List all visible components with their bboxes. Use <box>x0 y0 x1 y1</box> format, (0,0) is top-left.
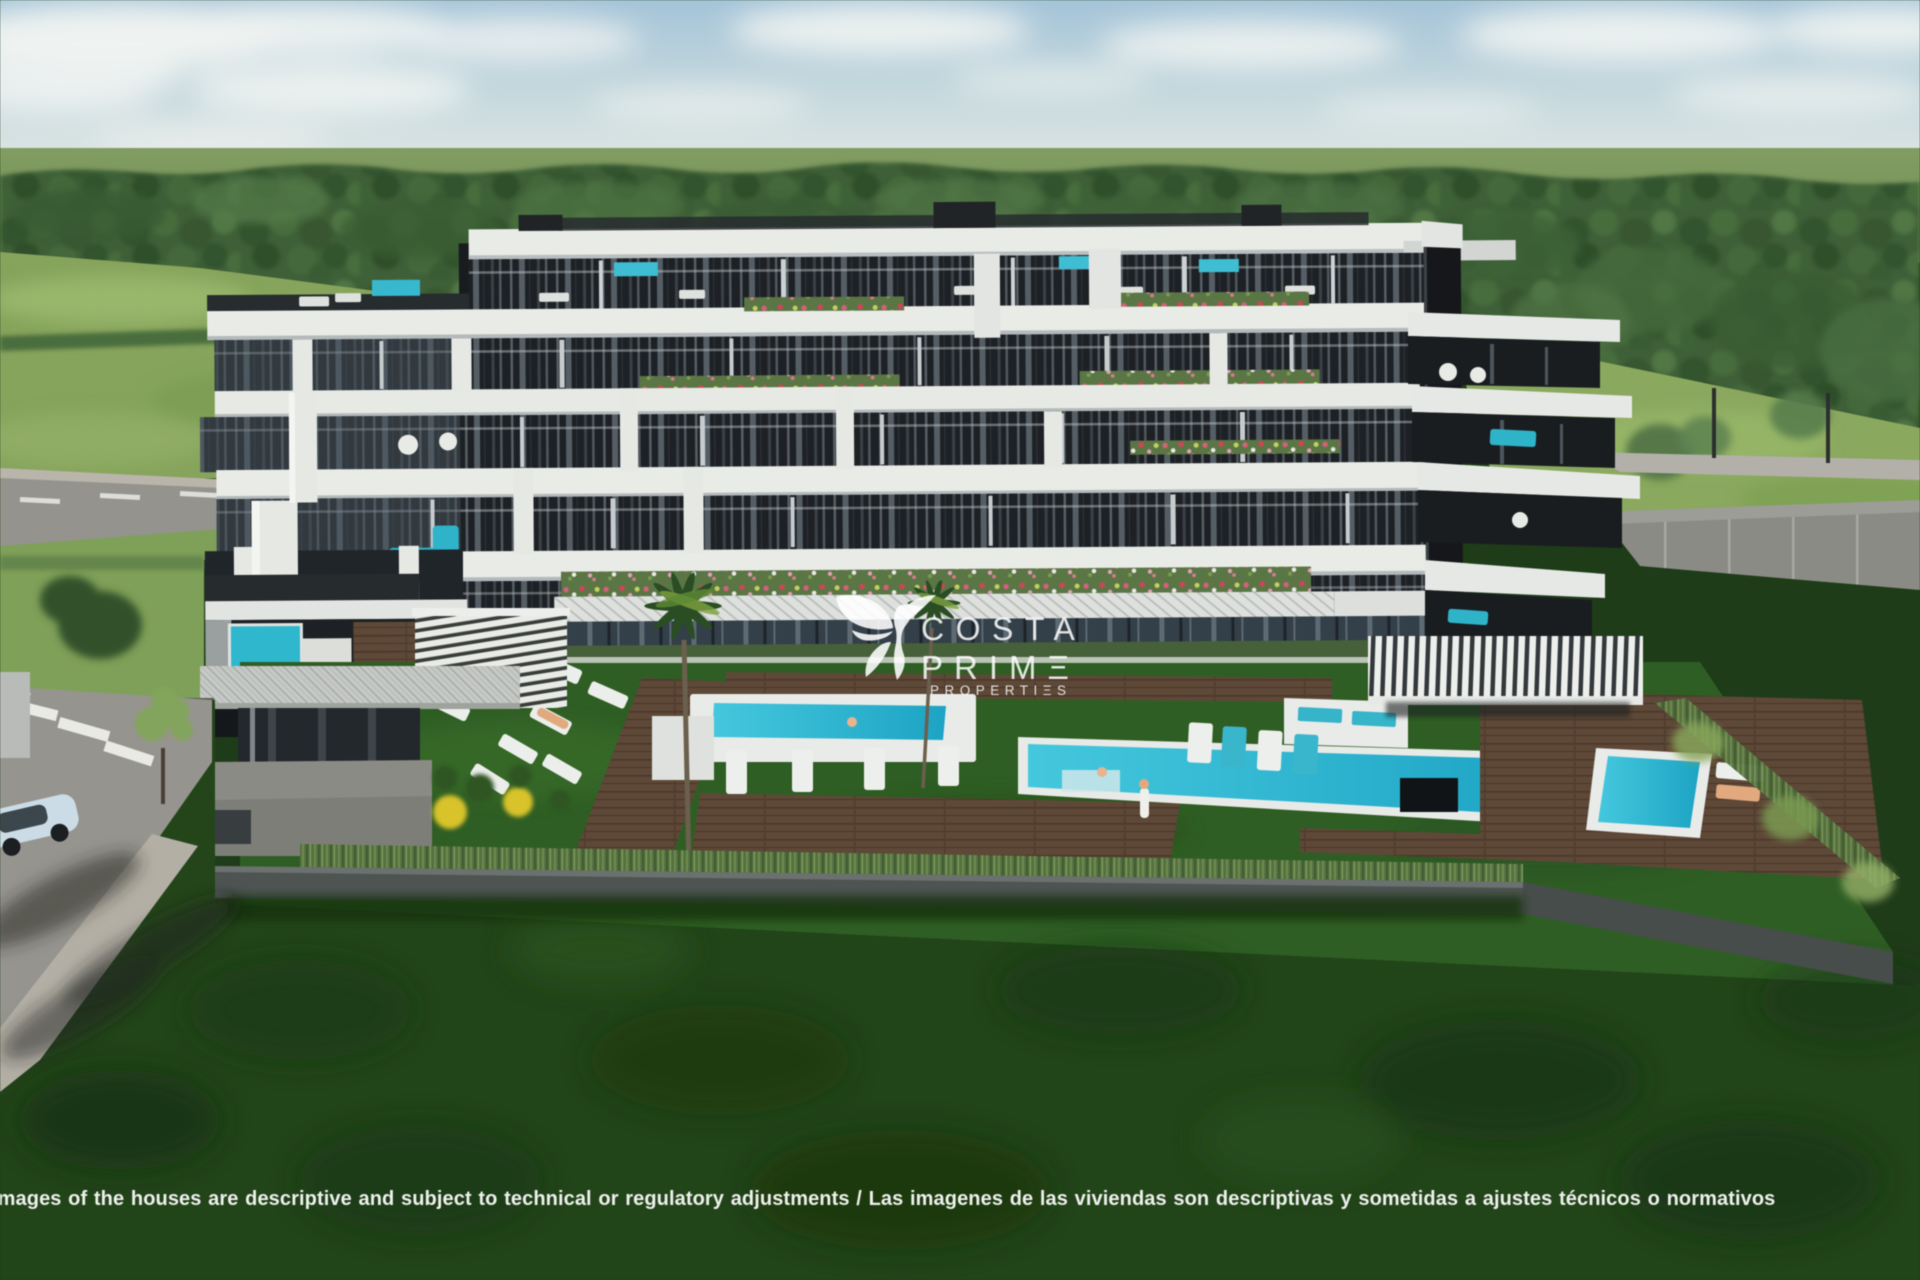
svg-text:PROPERTIΞS: PROPERTIΞS <box>930 683 1072 698</box>
svg-text:PRIMΞ: PRIMΞ <box>921 649 1080 686</box>
svg-text:images of the houses are descr: images of the houses are descriptive and… <box>0 1188 1775 1210</box>
svg-text:COSTA: COSTA <box>921 611 1086 647</box>
